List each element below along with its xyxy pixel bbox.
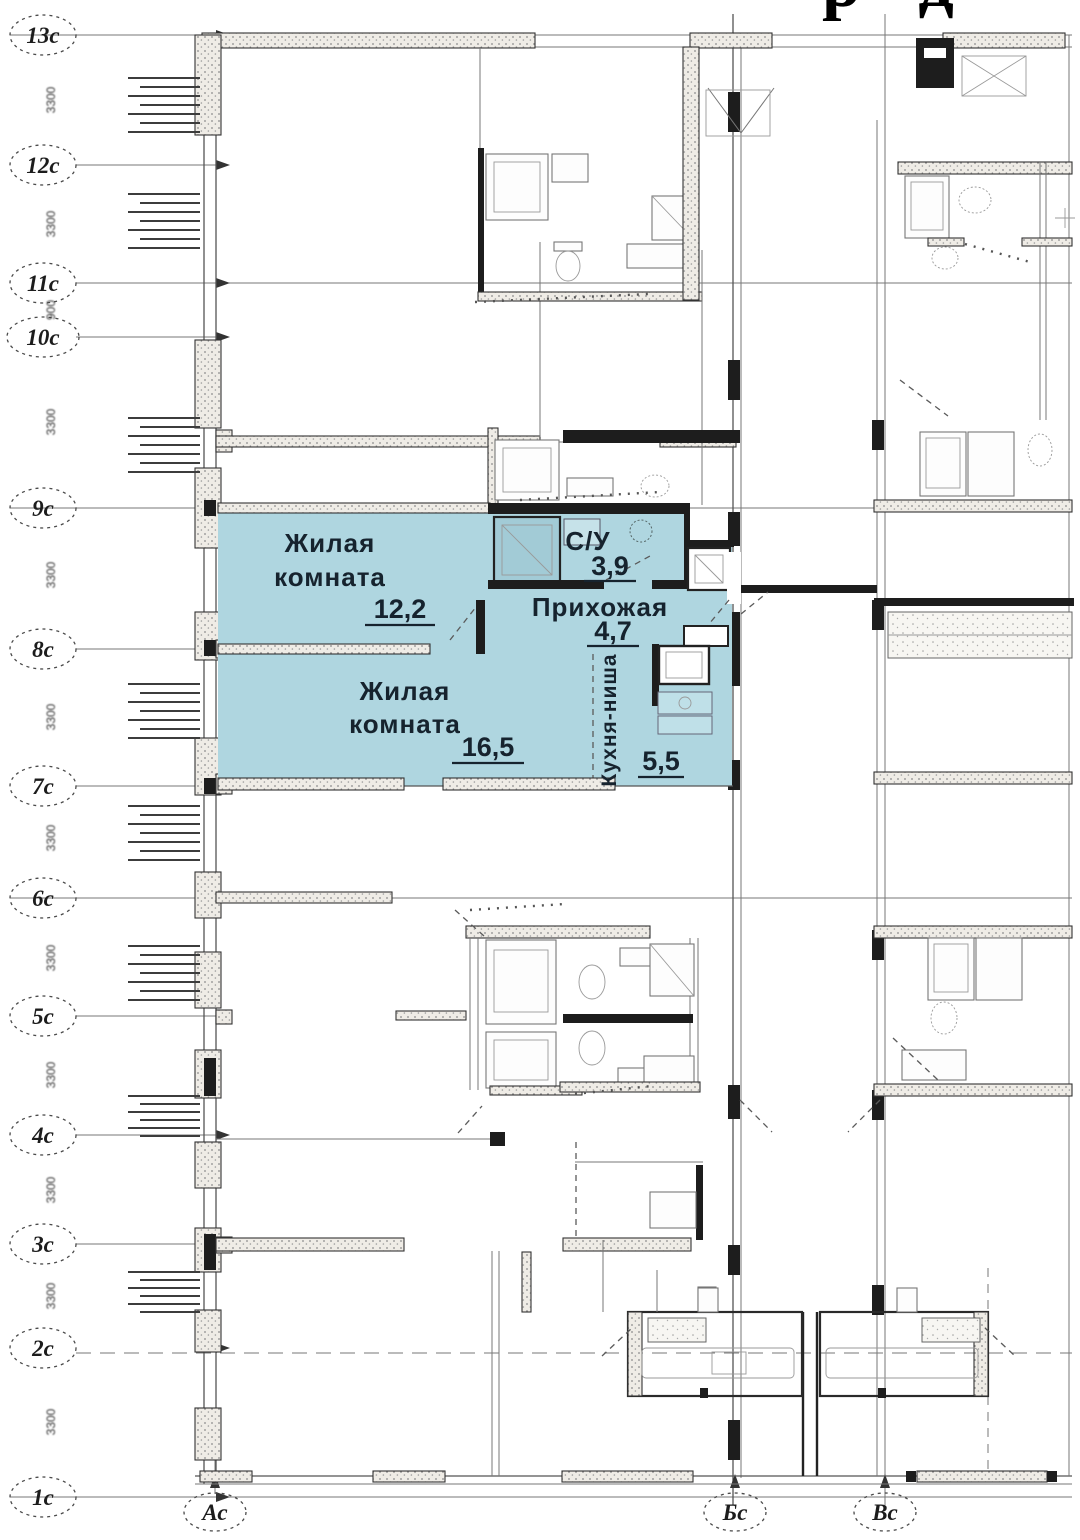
kitchen-area: 5,5 (642, 746, 680, 776)
axis-label-9s: 9с (32, 496, 54, 521)
kitchen-name: Кухня-ниша (598, 653, 621, 786)
bottom-terraces (602, 1240, 1015, 1476)
axis-label-1s: 1с (32, 1485, 54, 1510)
balcony-railings (128, 78, 200, 1312)
axis-label-vs: Вс (871, 1500, 898, 1525)
svg-text:3300: 3300 (44, 210, 58, 237)
axis-label-13s: 13с (26, 23, 59, 48)
room1-area: 12,2 (374, 594, 427, 624)
axis-label-4s: 4с (31, 1123, 54, 1148)
axis-label-8s: 8с (32, 637, 54, 662)
su-area: 3,9 (591, 551, 629, 581)
hallway-area: 4,7 (594, 616, 632, 646)
room1-name-line1: Жилая (284, 528, 376, 558)
unit-above-highlight (488, 250, 740, 506)
upper-left-unit (216, 47, 774, 447)
svg-text:3300: 3300 (44, 703, 58, 730)
svg-text:3300: 3300 (44, 86, 58, 113)
room2-name-line1: Жилая (359, 676, 451, 706)
axis-label-10s: 10с (26, 325, 59, 350)
left-axis-bubbles (7, 15, 79, 1517)
axis-label-11s: 11с (27, 271, 59, 296)
axis-label-12s: 12с (26, 153, 59, 178)
svg-text:3300: 3300 (44, 1176, 58, 1203)
svg-text:900: 900 (44, 300, 58, 320)
svg-text:3300: 3300 (44, 408, 58, 435)
entry-opening (727, 552, 741, 604)
svg-text:3300: 3300 (44, 1061, 58, 1088)
svg-text:3300: 3300 (44, 824, 58, 851)
bottom-axis-bubbles (184, 1493, 916, 1531)
axis-label-3s: 3с (31, 1232, 54, 1257)
axis-label-7s: 7с (32, 774, 54, 799)
room2-area: 16,5 (462, 732, 515, 762)
room2-name-line2: комната (349, 709, 461, 739)
axis-label-6s: 6с (32, 886, 54, 911)
axis-label-as: Ас (200, 1500, 227, 1525)
svg-text:3300: 3300 (44, 1408, 58, 1435)
page-title-fragment: р д (822, 0, 974, 22)
svg-text:3300: 3300 (44, 561, 58, 588)
axis-label-5s: 5с (32, 1004, 54, 1029)
svg-text:3300: 3300 (44, 944, 58, 971)
floor-plan-drawing: р д 13с 12с 11с 10с 9с 8с (0, 0, 1080, 1540)
axis-label-bs: Бс (722, 1500, 748, 1525)
axis-label-2s: 2с (31, 1336, 54, 1361)
kitchen-counter (658, 692, 712, 714)
room1-name-line2: комната (274, 562, 386, 592)
svg-text:3300: 3300 (44, 1282, 58, 1309)
kitchen-duct (684, 626, 728, 646)
floor-plan-page: р д 13с 12с 11с 10с 9с 8с (0, 0, 1080, 1540)
